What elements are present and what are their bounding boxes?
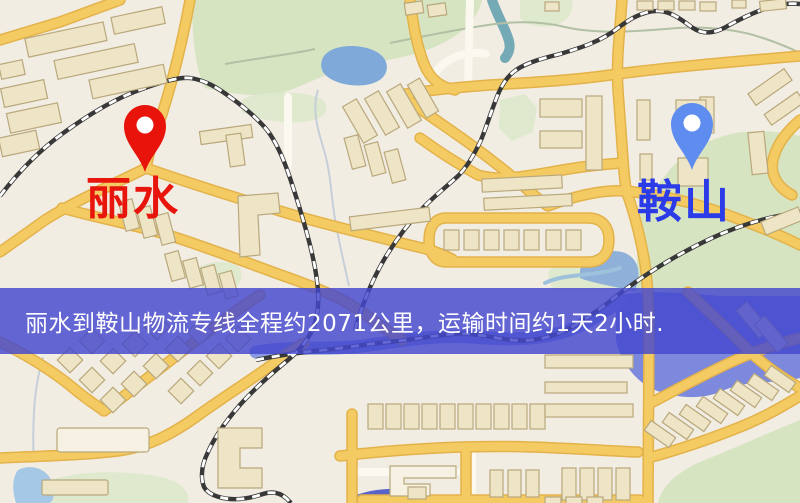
destination-label: 鞍山 [637, 179, 731, 224]
pin-hole [684, 115, 701, 132]
origin-pin [122, 103, 168, 173]
pin-hole [137, 117, 154, 134]
map-pin-icon [671, 103, 713, 170]
logistics-route-map: 丽水到鞍山物流专线全程约2071公里，运输时间约1天2小时. 丽水 鞍山 [0, 0, 800, 503]
destination-pin [669, 101, 715, 171]
route-info-text: 丽水到鞍山物流专线全程约2071公里，运输时间约1天2小时. [0, 304, 664, 338]
map-canvas [0, 0, 800, 503]
route-info-banner: 丽水到鞍山物流专线全程约2071公里，运输时间约1天2小时. [0, 288, 800, 354]
map-pin-icon [124, 105, 166, 172]
origin-label: 丽水 [86, 176, 180, 221]
